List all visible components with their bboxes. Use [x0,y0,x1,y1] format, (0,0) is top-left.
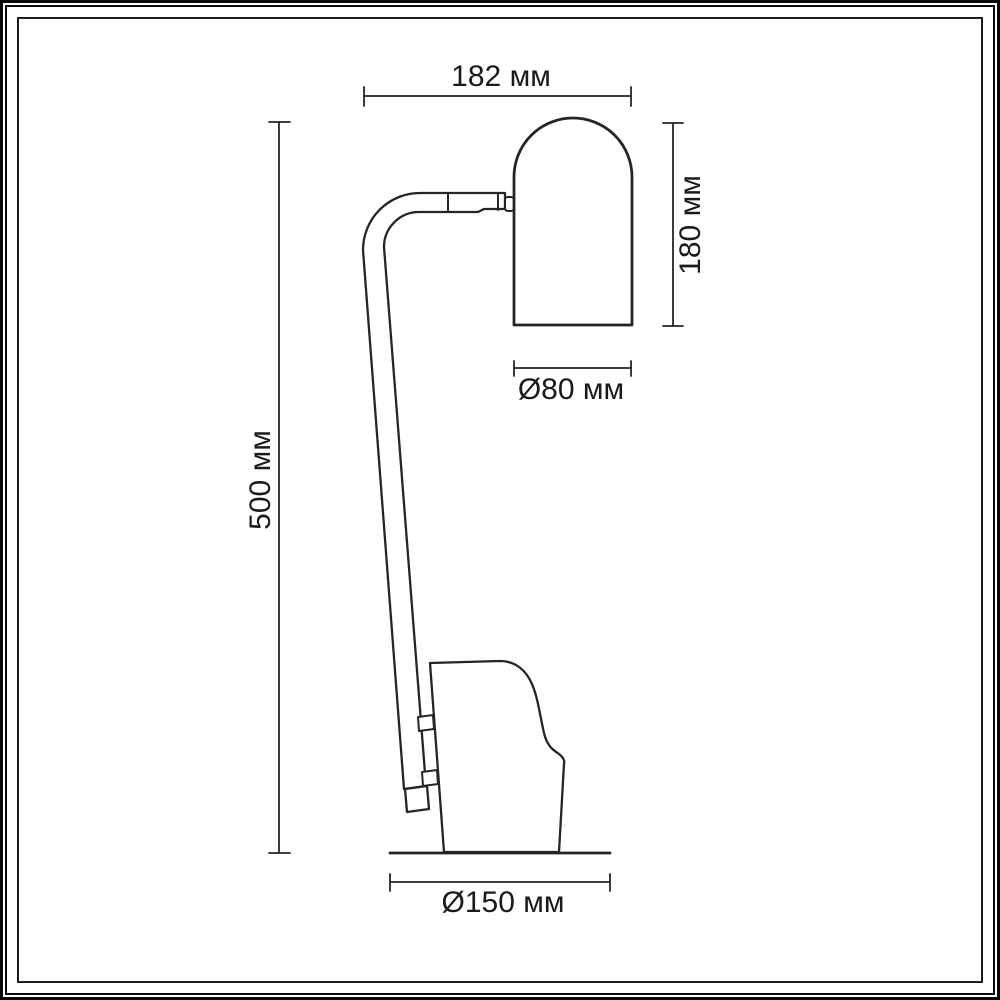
lamp-shade [514,118,632,325]
lamp-base [430,661,564,852]
dim-label-base-diameter: Ø150 мм [442,888,565,918]
arm-clamp-lower [422,770,438,786]
lamp-line-drawing [0,0,1000,1000]
dim-label-fixture-width: 182 мм [451,62,551,92]
dim-label-total-height: 500 мм [246,430,276,530]
arm-foot [405,786,429,812]
dim-label-shade-height: 180 мм [676,175,706,275]
dim-label-shade-diameter: Ø80 мм [518,375,624,405]
arm-clamp-upper [418,715,434,731]
drawing-sheet: 182 мм 180 мм Ø80 мм 500 мм Ø150 мм [0,0,1000,1000]
